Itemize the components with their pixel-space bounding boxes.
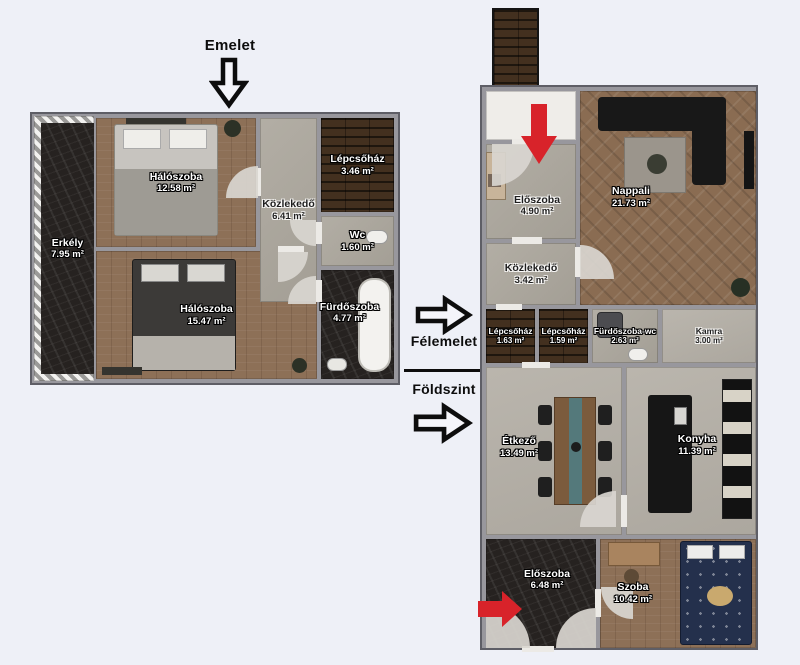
pet (707, 586, 733, 606)
pillow (187, 264, 225, 282)
pillow (719, 545, 745, 559)
room-label: Előszoba 4.90 m² (514, 194, 560, 218)
sofa (692, 97, 726, 185)
kitchen-cabinets (722, 379, 752, 519)
room-konyha: Konyha 11.39 m² (626, 367, 756, 535)
room-furdoszoba-emelet: Fürdőszoba 4.77 m² (321, 270, 394, 379)
emelet-heading: Emelet (190, 37, 270, 54)
blanket (115, 169, 217, 235)
chair (538, 477, 552, 497)
dining-table (554, 397, 596, 505)
bed (680, 541, 752, 645)
plant (224, 120, 241, 137)
plant (647, 154, 667, 174)
floorplan-felemelet-foldszint: Előszoba 4.90 m² Közlekedő 3.42 m² Nappa… (480, 85, 758, 650)
chair (598, 441, 612, 461)
chair (598, 405, 612, 425)
room-lepcsohaz-1: Lépcsőház 1.63 m² (486, 309, 535, 363)
room-label: Előszoba 6.48 m² (524, 568, 570, 592)
room-label: Közlekedő 6.41 m² (262, 198, 315, 222)
room-lepcsohaz-emelet: Lépcsőház 3.46 m² (321, 118, 394, 212)
bench (102, 367, 142, 375)
right-arrow-foldszint-icon (413, 402, 473, 444)
room-label: Erkély 7.95 m² (51, 237, 84, 261)
red-right-arrow-icon (476, 588, 524, 630)
chair (624, 569, 639, 584)
desk (608, 542, 660, 566)
pillow (687, 545, 713, 559)
room-kamra: Kamra 3.00 m² (662, 309, 756, 363)
down-arrow-icon (209, 57, 249, 109)
room-label: Lépcsőház 3.46 m² (330, 153, 384, 177)
felemelet-heading: Félemelet (403, 333, 485, 349)
toilet (366, 230, 388, 244)
floorplan-emelet: Erkély 7.95 m² Hálószoba 12.58 m² Közlek… (30, 112, 400, 385)
room-label: Lépcsőház 1.63 m² (489, 326, 533, 346)
room-kozlekedo-felemelet: Közlekedő 3.42 m² (486, 243, 576, 305)
rug (624, 137, 686, 193)
room-wc: Wc 1.60 m² (321, 216, 394, 266)
room-label: Lépcsőház 1.59 m² (542, 326, 586, 346)
door-gap (316, 222, 322, 244)
bed (132, 259, 236, 371)
room-furdoszoba-wc: Fürdőszoba-wc 2.63 m² (592, 309, 658, 363)
pillow (123, 129, 161, 149)
room-erkely: Erkély 7.95 m² (34, 116, 94, 381)
chair (538, 441, 552, 461)
door-gap (316, 280, 322, 302)
door-arc (556, 608, 596, 648)
level-divider (404, 369, 481, 372)
foldszint-heading: Földszint (403, 381, 485, 397)
room-lepcsohaz-2: Lépcsőház 1.59 m² (539, 309, 588, 363)
sheet (133, 336, 235, 370)
bowl (571, 442, 581, 452)
chair (538, 405, 552, 425)
room-label: Kamra 3.00 m² (695, 326, 723, 346)
toilet (628, 348, 648, 361)
door-gap (522, 362, 550, 368)
room-label: Közlekedő 3.42 m² (505, 262, 558, 286)
door-gap (621, 495, 627, 527)
door-gap (496, 304, 522, 310)
pillow (141, 264, 179, 282)
bed (114, 124, 218, 236)
sink (327, 358, 347, 371)
sink (674, 407, 687, 425)
red-down-arrow-icon (519, 102, 559, 168)
right-arrow-felemelet-icon (415, 295, 473, 335)
plant (731, 278, 750, 297)
pillow (169, 129, 207, 149)
bathtub (358, 278, 391, 372)
plant (292, 358, 307, 373)
media-unit (744, 131, 754, 189)
door-gap (512, 237, 542, 244)
room-label: Étkező 13.49 m² (500, 435, 538, 459)
shower (597, 312, 623, 338)
exterior-stairs (492, 8, 539, 88)
balcony-floor: Erkély 7.95 m² (41, 123, 94, 374)
kitchen-island (648, 395, 692, 513)
